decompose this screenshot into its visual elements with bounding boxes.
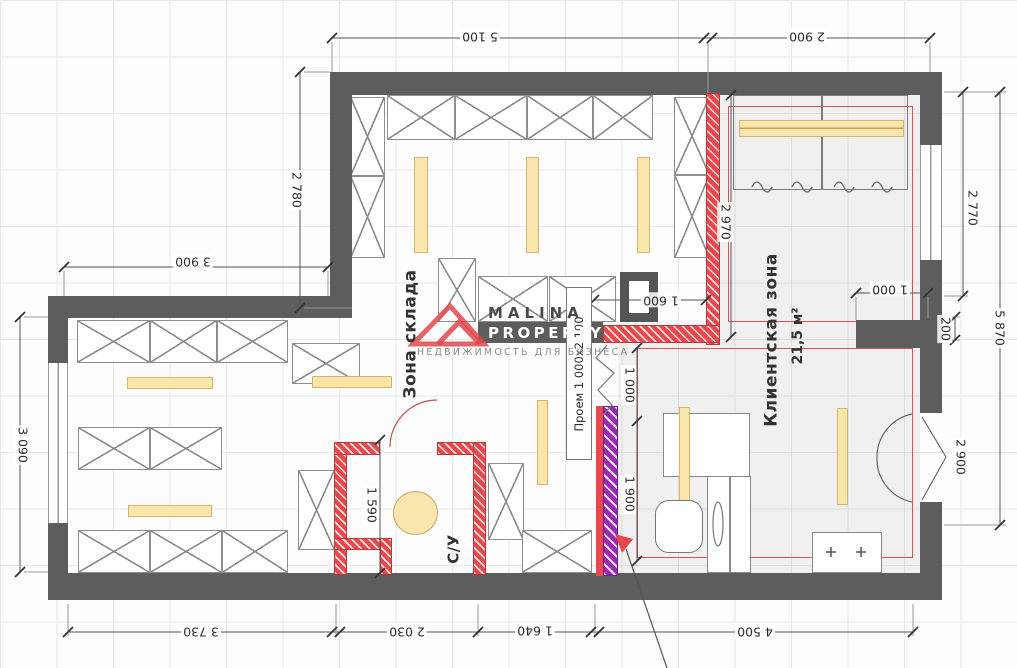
room-label-client: Клиентская зона	[763, 251, 782, 429]
office-chair	[655, 500, 703, 553]
room-label-wc: С/У	[446, 532, 463, 566]
clothes-rack-divider	[821, 95, 823, 190]
dim-bottom-4: 4 500	[735, 624, 775, 639]
dim-right-door: 2 900	[953, 437, 968, 477]
wall-right-1	[920, 72, 942, 145]
shelf-rack	[150, 320, 217, 363]
shelf-rack	[455, 95, 527, 140]
wc-partition-v	[380, 538, 392, 575]
dim-top-left: 5 100	[460, 29, 500, 44]
entrance-dim-bracket	[922, 417, 946, 500]
shelf-rack	[78, 530, 150, 573]
light-strip	[312, 376, 392, 388]
shelf-rack	[674, 97, 710, 175]
shelf-rack	[527, 95, 593, 140]
wall-top	[330, 72, 942, 95]
light-strip	[128, 505, 212, 517]
dim-top-right: 2 900	[787, 29, 827, 44]
dim-right-total: 5 870	[992, 308, 1007, 348]
showcase-highlight-red	[596, 406, 603, 576]
dim-bottom-3: 1 640	[515, 623, 555, 638]
light-strip	[414, 157, 428, 253]
window-right	[920, 145, 942, 260]
shelf-rack	[217, 320, 288, 363]
window-left	[48, 363, 68, 523]
dim-inner-pilaster: 1 000	[870, 282, 910, 297]
new-wall-horizontal	[603, 325, 720, 343]
dim-bottom-2: 2 030	[387, 624, 427, 639]
wall-left-lower	[48, 523, 68, 573]
dim-right-upper: 2 770	[965, 188, 980, 228]
wall-right-3	[920, 502, 942, 600]
wall-left-upper	[48, 296, 68, 363]
room-label-client-area: 21,5 м²	[790, 306, 806, 367]
shelf-rack	[150, 427, 222, 470]
shelf-rack	[674, 175, 710, 258]
wall-pilaster	[856, 320, 920, 348]
dim-left-bottom: 3 090	[15, 425, 30, 465]
shelf-rack	[522, 530, 592, 573]
dim-inner-fitting: 2 970	[718, 202, 733, 242]
showcase	[603, 406, 618, 576]
shelf-rack	[593, 95, 653, 140]
wc-wall-top-left	[334, 442, 380, 455]
dim-right-pilaster: 200	[938, 315, 953, 343]
wc-wall-right	[473, 442, 486, 575]
desk	[663, 413, 750, 477]
light-strip	[637, 157, 650, 253]
wall-step	[48, 296, 352, 318]
wc-fixture	[393, 491, 438, 535]
watermark: MALINA PROPERTY НЕДВИЖИМОСТЬ ДЛЯ БИЗНЕСА	[393, 298, 608, 362]
light-strip	[739, 120, 904, 137]
shelf-rack	[387, 95, 455, 140]
dim-bottom-1: 3 730	[181, 624, 221, 639]
floor-plan: Проем 1 000х2 100 5 100 2 900 2 780 3 90…	[0, 0, 1017, 668]
dim-inner-wc: 1 590	[364, 485, 379, 525]
shelf-rack	[488, 463, 524, 540]
dim-inner-pass: 1 000	[622, 365, 637, 405]
shelf-rack	[350, 176, 385, 258]
watermark-tagline: НЕДВИЖИМОСТЬ ДЛЯ БИЗНЕСА	[417, 347, 629, 358]
watermark-brand-bottom: PROPERTY	[488, 324, 605, 342]
cabinet-divider	[729, 476, 731, 573]
watermark-brand-top: MALINA	[488, 304, 584, 322]
side-table	[812, 532, 882, 573]
shelf-rack	[150, 530, 222, 573]
light-strip	[537, 400, 548, 485]
wc-wall-left	[334, 442, 347, 575]
shelf-rack	[222, 530, 288, 573]
shelf-rack	[350, 97, 385, 176]
dim-inner-showcase: 1 900	[622, 474, 637, 514]
light-strip	[837, 408, 848, 505]
wc-door-arc	[390, 400, 437, 447]
wall-upper-left-vertical	[330, 72, 352, 318]
light-strip	[127, 377, 213, 389]
dim-left-mid: 3 900	[173, 254, 213, 269]
dim-inner-top: 1 600	[641, 293, 681, 308]
shelf-rack	[78, 427, 150, 470]
light-strip	[679, 407, 690, 507]
dim-left-top: 2 780	[289, 170, 304, 210]
wall-bottom	[48, 573, 942, 600]
shelf-rack	[77, 320, 150, 363]
light-strip	[526, 157, 539, 253]
shelf-rack	[298, 470, 335, 550]
